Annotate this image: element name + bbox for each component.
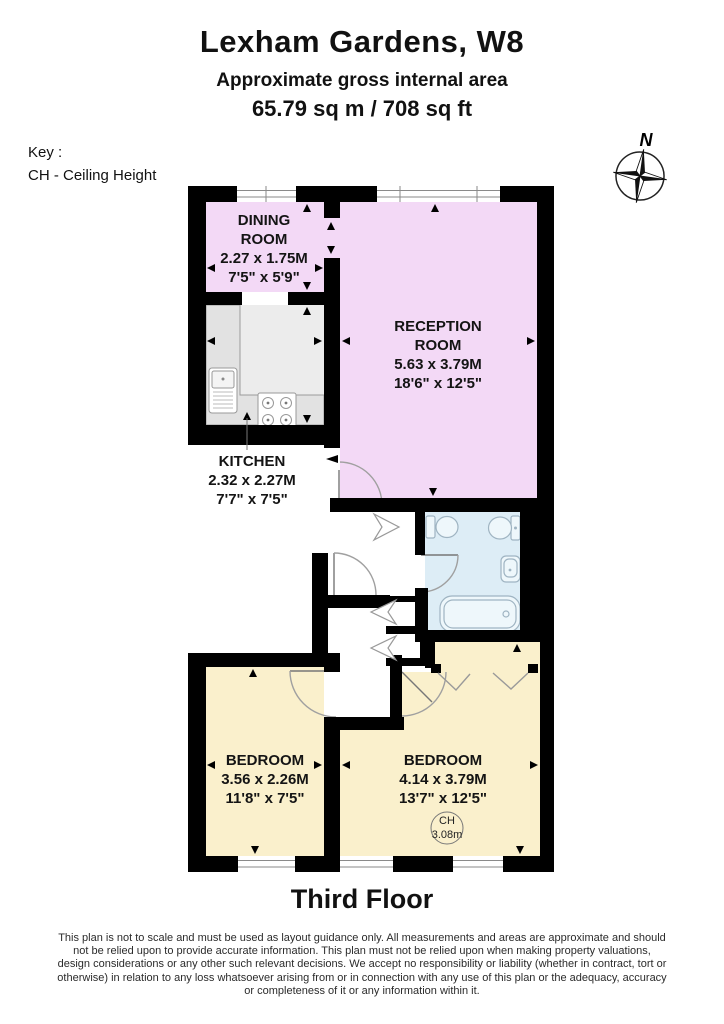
ch-label: CH (439, 815, 455, 827)
disclaimer-line: otherwise) in relation to any loss whats… (32, 972, 692, 985)
reception-room-name2: ROOM (415, 337, 462, 354)
hob-icon (258, 393, 296, 429)
reception-room-dims-m: 5.63 x 3.79M (394, 356, 482, 373)
disclaimer-line: design considerations or any other such … (32, 958, 692, 971)
kitchen-dims-m: 2.32 x 2.27M (208, 472, 296, 489)
disclaimer-line: not be relied upon to provide accurate i… (32, 945, 692, 958)
bidet-icon (426, 516, 458, 538)
kitchen-label: KITCHEN 2.32 x 2.27M 7'7" x 7'5" (208, 453, 296, 508)
reception-room-name: RECEPTION (394, 318, 482, 335)
window-dining (237, 186, 296, 202)
compass-north-label: N (640, 130, 654, 150)
bedroom-left-dims-ft: 11'8" x 7'5" (226, 790, 305, 807)
bedroom-left-dims-m: 3.56 x 2.26M (221, 771, 309, 788)
floor-label: Third Floor (0, 884, 724, 915)
dining-room-dims-m: 2.27 x 1.75M (220, 250, 308, 267)
ch-value: 3.08m (432, 829, 463, 841)
dining-room-dims-ft: 7'5" x 5'9" (228, 269, 299, 286)
window-bedroom-right-b (453, 856, 503, 872)
reception-room-dims-ft: 18'6" x 12'5" (394, 375, 482, 392)
washbasin-icon (501, 556, 520, 582)
wc-door-dart-icon (374, 514, 399, 540)
kitchen-name: KITCHEN (219, 453, 286, 470)
bedroom-right-name: BEDROOM (404, 752, 482, 769)
disclaimer-line: or completeness of it or any information… (32, 985, 692, 998)
disclaimer-line: This plan is not to scale and must be us… (32, 932, 692, 945)
compass-icon: N (610, 130, 671, 206)
disclaimer: This plan is not to scale and must be us… (32, 932, 692, 998)
sink-icon (209, 368, 237, 413)
bedroom-left-label: BEDROOM 3.56 x 2.26M 11'8" x 7'5" (221, 752, 309, 807)
window-bedroom-left (238, 856, 295, 872)
toilet-icon (489, 516, 521, 540)
window-reception (377, 186, 500, 202)
dining-room-name: DINING (238, 212, 291, 229)
entrance-door (334, 553, 376, 595)
window-bedroom-right-a (340, 856, 393, 872)
floor-plan: DINING ROOM 2.27 x 1.75M 7'5" x 5'9" REC… (0, 0, 724, 1024)
cupboard-door-dart-icon (371, 636, 396, 660)
bedroom-right-dims-m: 4.14 x 3.79M (399, 771, 487, 788)
bedroom-left-name: BEDROOM (226, 752, 304, 769)
dining-room-name2: ROOM (241, 231, 288, 248)
kitchen-dims-ft: 7'7" x 7'5" (216, 491, 287, 508)
bedroom-right-dims-ft: 13'7" x 12'5" (399, 790, 487, 807)
bathtub-icon (440, 596, 520, 632)
bedroom-right-label: BEDROOM 4.14 x 3.79M 13'7" x 12'5" (399, 752, 487, 807)
